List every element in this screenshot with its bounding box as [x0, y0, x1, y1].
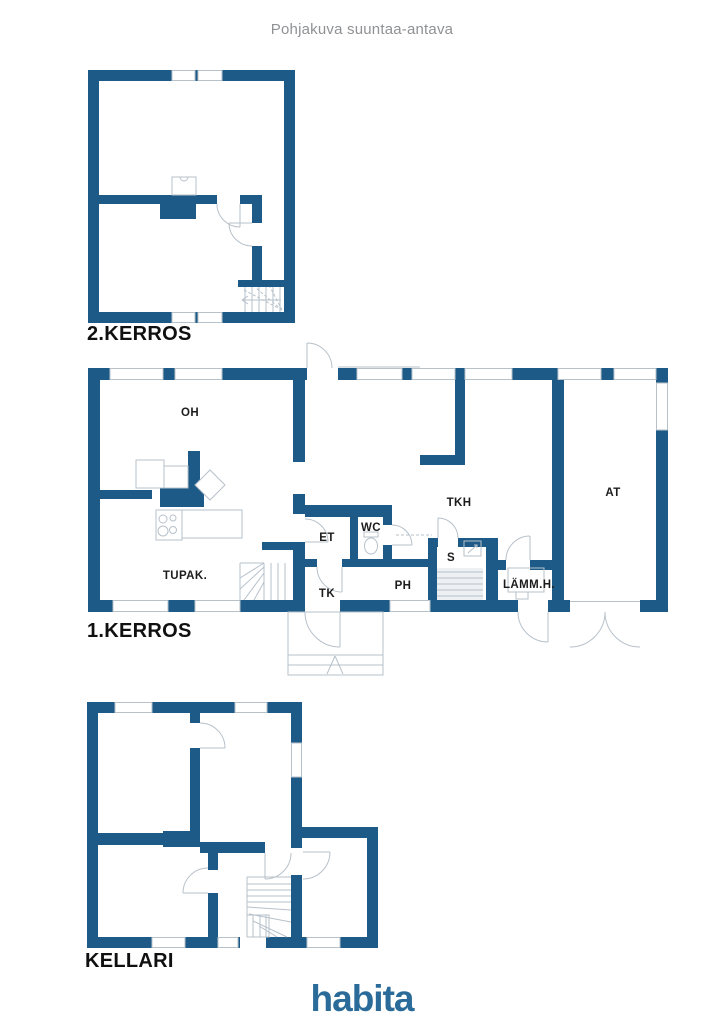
chimney-block [163, 831, 200, 847]
room-label-wc: WC [361, 522, 381, 534]
page-title: Pohjakuva suuntaa-antava [0, 21, 724, 38]
kellari-plan-drawing [83, 698, 383, 954]
kellari-label: KELLARI [85, 950, 174, 973]
room-label-ph: PH [395, 580, 412, 592]
room-label-oh: OH [181, 407, 199, 419]
fireplace-block [160, 204, 196, 219]
room-label-lammh: LÄMM.H. [503, 579, 555, 591]
room-label-tk: TK [319, 588, 335, 600]
room-label-at: AT [605, 487, 620, 499]
kellari-plan [83, 698, 383, 954]
floor1-label: 1.KERROS [87, 620, 192, 643]
room-label-tupak: TUPAK. [163, 570, 207, 582]
room-label-s: S [447, 552, 455, 564]
floor2-plan [86, 66, 298, 324]
floorplan-page: Pohjakuva suuntaa-antava [0, 0, 724, 1024]
fireplace-block [160, 488, 204, 507]
basement-stairs-floor1 [437, 568, 483, 600]
terrace [288, 612, 383, 675]
floor2-plan-drawing [86, 66, 298, 324]
room-label-tkh: TKH [447, 497, 472, 509]
chimney-symbol [172, 177, 196, 195]
room-label-et: ET [319, 532, 335, 544]
kellari-outer-walls [87, 702, 378, 948]
habita-logo: habita [0, 978, 724, 1020]
